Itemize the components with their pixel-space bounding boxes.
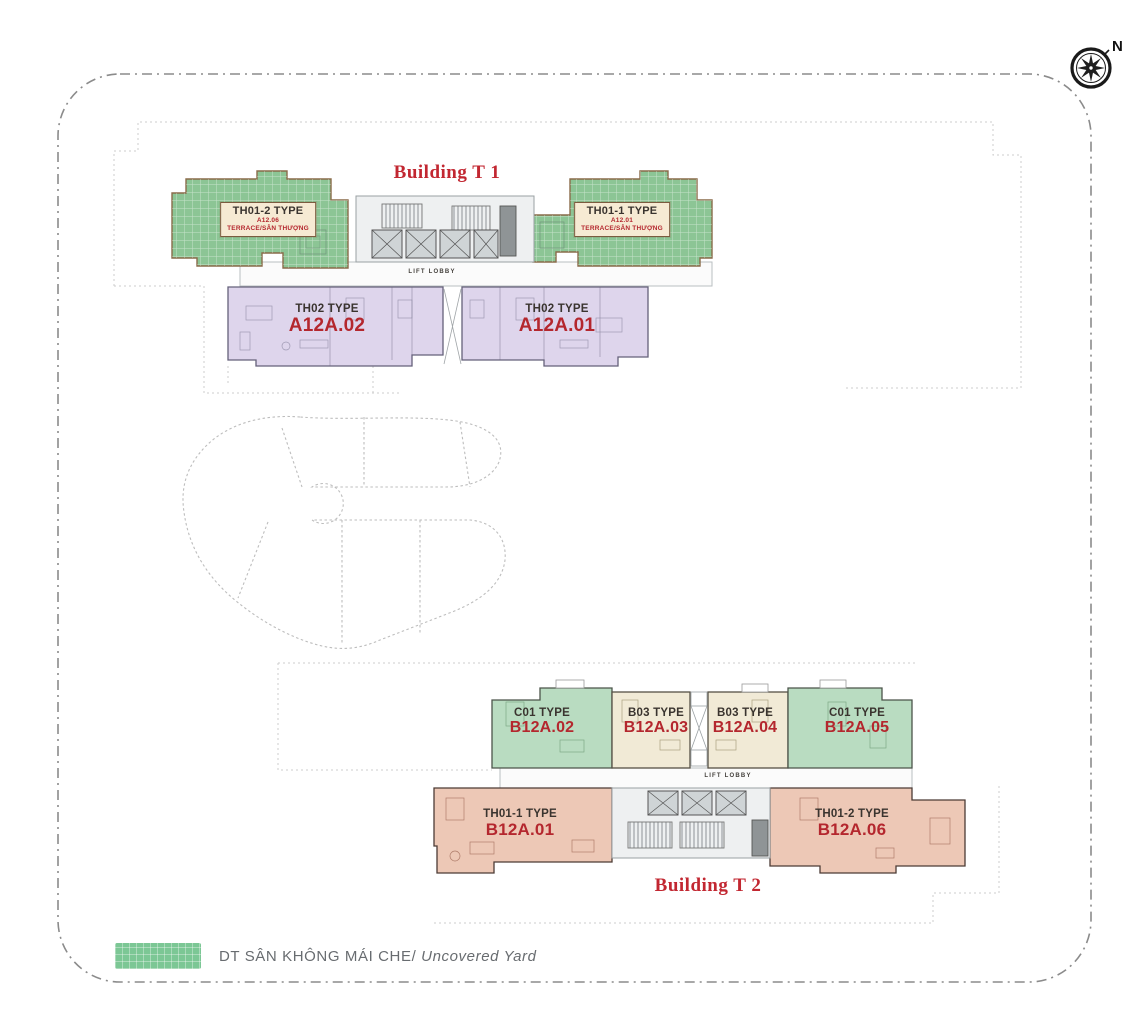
unit-label-b12a01: TH01-1 TYPE B12A.01	[483, 808, 557, 840]
legend-uncovered-yard-label: DT SÂN KHÔNG MÁI CHE/ Uncovered Yard	[219, 948, 537, 965]
t1-core	[356, 196, 534, 262]
site-plan-graphics	[0, 0, 1147, 1025]
podium-garden-outline	[183, 416, 505, 648]
unit-label-b12a04: B03 TYPE B12A.04	[713, 707, 778, 737]
unit-label-b12a03: B03 TYPE B12A.03	[624, 707, 689, 737]
legend-label-en: Uncovered Yard	[421, 948, 536, 965]
unit-label-b12a05: C01 TYPE B12A.05	[825, 707, 890, 737]
unit-label-b12a02: C01 TYPE B12A.02	[510, 707, 575, 737]
compass-rose: N	[1058, 33, 1138, 103]
legend-label-vi: DT SÂN KHÔNG MÁI CHE/	[219, 948, 416, 965]
legend: DT SÂN KHÔNG MÁI CHE/ Uncovered Yard	[115, 943, 537, 969]
unit-label-a12a02: TH02 TYPE A12A.02	[289, 303, 365, 337]
building-t2-title: Building T 2	[655, 875, 762, 897]
building-t1-title: Building T 1	[394, 162, 501, 184]
floor-plan-page: Building T 1 Building T 2 TH01-2 TYPE A1…	[0, 0, 1147, 1025]
unit-label-th01-1-t1: TH01-1 TYPE A12.01 TERRACE/SÂN THƯỢNG	[574, 202, 670, 237]
t1-lift-lobby-label: LIFT LOBBY	[408, 269, 455, 275]
unit-label-b12a06: TH01-2 TYPE B12A.06	[815, 808, 889, 840]
t2-lift-lobby-label: LIFT LOBBY	[704, 773, 751, 779]
legend-uncovered-yard-swatch	[115, 943, 201, 969]
compass-icon	[1058, 33, 1138, 103]
unit-label-th01-2-t1: TH01-2 TYPE A12.06 TERRACE/SÂN THƯỢNG	[220, 202, 316, 237]
unit-label-a12a01: TH02 TYPE A12A.01	[519, 303, 595, 337]
compass-north-label: N	[1112, 38, 1123, 55]
